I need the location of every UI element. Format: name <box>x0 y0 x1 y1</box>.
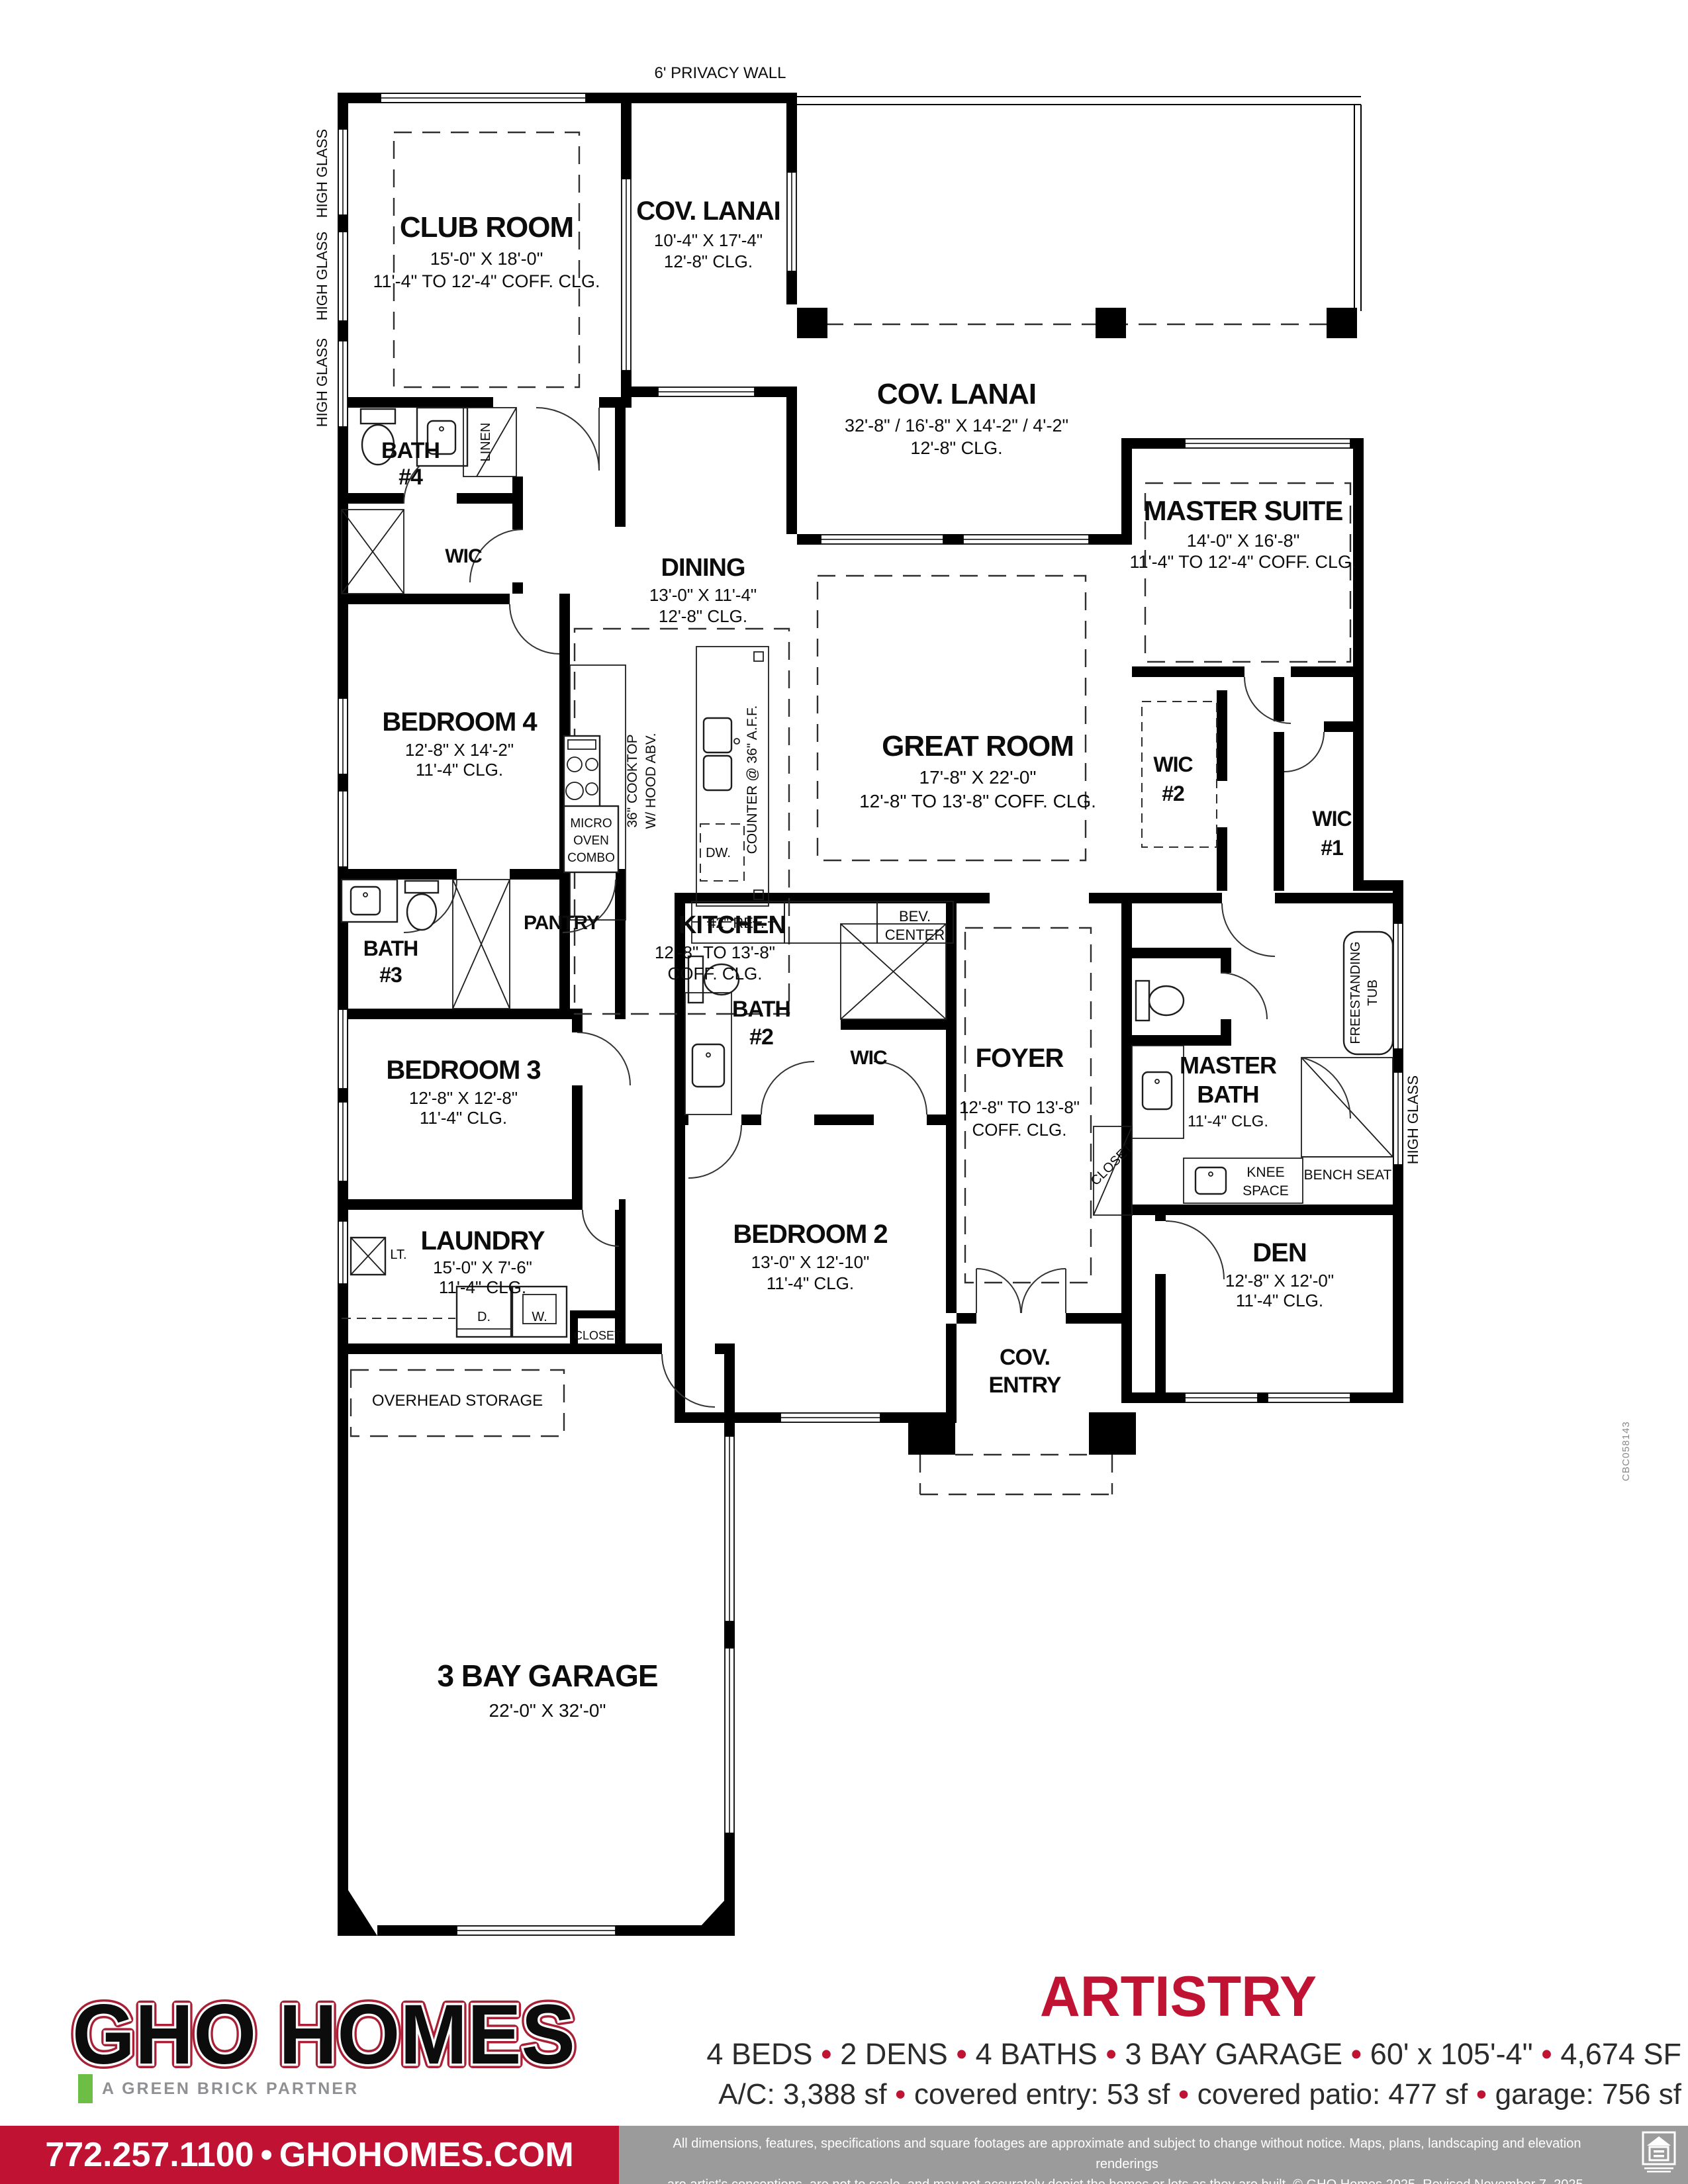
svg-text:12'-8" X 12'-8": 12'-8" X 12'-8" <box>409 1088 518 1108</box>
disclaimer-text: All dimensions, features, specifications… <box>649 2134 1605 2184</box>
knee-space-label: KNEE <box>1246 1165 1284 1180</box>
svg-text:12'-8" X 12'-0": 12'-8" X 12'-0" <box>1225 1271 1334 1291</box>
disclaimer-bar: All dimensions, features, specifications… <box>619 2126 1688 2184</box>
room-label-wic-1: WIC <box>1312 807 1352 831</box>
room-label-foyer: FOYER <box>976 1044 1064 1073</box>
svg-text:11'-4" CLG.: 11'-4" CLG. <box>420 1108 507 1128</box>
room-label-bedroom-4: BEDROOM 4 <box>382 707 538 737</box>
svg-text:10'-4" X 17'-4": 10'-4" X 17'-4" <box>654 230 763 250</box>
plan-specs-line2: A/C: 3,388 sf•covered entry: 53 sf•cover… <box>718 2078 1681 2111</box>
svg-text:12'-8" CLG.: 12'-8" CLG. <box>664 251 753 271</box>
svg-text:COFF. CLG.: COFF. CLG. <box>972 1120 1066 1140</box>
contractor-license: CBC058143 <box>1620 1421 1632 1481</box>
bench-seat-label: BENCH SEAT <box>1304 1167 1392 1183</box>
high-glass-label: HIGH GLASS <box>1405 1075 1421 1164</box>
svg-text:13'-0" X 11'-4": 13'-0" X 11'-4" <box>649 585 757 605</box>
svg-text:OVEN: OVEN <box>573 834 609 848</box>
floor-plan-flyer: 6' PRIVACY WALL HIGH GLASS HIGH GLASS HI… <box>0 0 1688 2184</box>
plan-name: ARTISTRY <box>977 1964 1380 2030</box>
room-label-garage: 3 BAY GARAGE <box>437 1659 657 1693</box>
svg-text:CENTER: CENTER <box>885 927 945 943</box>
svg-text:COFF. CLG.: COFF. CLG. <box>667 964 762 983</box>
svg-text:14'-0" X 16'-8": 14'-0" X 16'-8" <box>1187 531 1300 551</box>
toilet-icon <box>405 881 438 930</box>
svg-text:#3: #3 <box>379 963 402 987</box>
closet-label: CLOSET <box>574 1329 622 1342</box>
bev-center-label: BEV. <box>899 908 931 925</box>
room-label-wic-bath4: WIC <box>445 545 482 567</box>
dryer-label: D. <box>477 1310 491 1324</box>
svg-text:W/ HOOD ABV.: W/ HOOD ABV. <box>643 733 659 829</box>
svg-text:32'-8" / 16'-8" X 14'-2" / 4'-: 32'-8" / 16'-8" X 14'-2" / 4'-2" <box>845 416 1068 435</box>
cooktop-label: 36" COOKTOP <box>625 734 640 827</box>
freestanding-tub-label: FREESTANDING <box>1348 941 1363 1044</box>
room-label-bath-3: BATH <box>363 936 418 960</box>
room-label-den: DEN <box>1252 1238 1306 1267</box>
contact-bar: 772.257.1100•GHOHOMES.COM <box>0 2126 619 2184</box>
high-glass-label: HIGH GLASS <box>314 232 330 320</box>
room-label-club-room: CLUB ROOM <box>400 211 573 244</box>
washer-label: W. <box>532 1310 547 1324</box>
privacy-wall-label: 6' PRIVACY WALL <box>655 64 786 82</box>
svg-text:22'-0" X 32'-0": 22'-0" X 32'-0" <box>489 1700 606 1721</box>
room-label-laundry: LAUNDRY <box>420 1226 545 1255</box>
svg-text:12'-8" CLG.: 12'-8" CLG. <box>659 606 747 626</box>
equal-housing-opportunity-logo <box>1642 2131 1676 2175</box>
room-label-bedroom-2: BEDROOM 2 <box>733 1220 887 1249</box>
room-label-bath-2: BATH <box>732 997 790 1022</box>
svg-text:11'-4" CLG.: 11'-4" CLG. <box>416 760 503 780</box>
svg-text:COMBO: COMBO <box>567 851 615 865</box>
counter-label: COUNTER @ 36" A.F.F. <box>745 705 760 854</box>
green-brick-bar <box>78 2074 93 2103</box>
room-label-master-suite: MASTER SUITE <box>1144 495 1343 526</box>
room-label-cov-lanai-top: COV. LANAI <box>636 197 780 226</box>
svg-text:11'-4" TO 12'-4" COFF. CLG.: 11'-4" TO 12'-4" COFF. CLG. <box>373 271 600 291</box>
laundry-tub-label: LT. <box>390 1248 406 1262</box>
room-label-great-room: GREAT ROOM <box>882 730 1074 762</box>
room-label-bedroom-3: BEDROOM 3 <box>386 1056 540 1085</box>
svg-text:#4: #4 <box>399 465 423 490</box>
plan-specs-line1: 4 BEDS•2 DENS•4 BATHS•3 BAY GARAGE•60' x… <box>706 2037 1681 2071</box>
toilet-icon <box>1136 981 1184 1021</box>
svg-text:#2: #2 <box>1162 782 1184 805</box>
svg-text:#1: #1 <box>1321 836 1343 860</box>
ref-label: 42" REF. <box>708 915 765 931</box>
svg-text:11'-4" CLG.: 11'-4" CLG. <box>1188 1113 1268 1130</box>
svg-text:#2: #2 <box>749 1024 773 1050</box>
room-label-master-bath: MASTER <box>1180 1052 1277 1079</box>
room-label-cov-lanai: COV. LANAI <box>877 378 1036 410</box>
green-brick-partner: A GREEN BRICK PARTNER <box>78 2073 359 2104</box>
svg-text:11'-4" CLG.: 11'-4" CLG. <box>767 1273 854 1293</box>
overhead-storage-label: OVERHEAD STORAGE <box>372 1392 543 1410</box>
room-label-wic-bath2: WIC <box>850 1047 887 1069</box>
svg-text:13'-0" X 12'-10": 13'-0" X 12'-10" <box>751 1252 870 1272</box>
room-label-cov-entry: COV. <box>1000 1345 1050 1370</box>
room-label-wic-2: WIC <box>1153 752 1193 776</box>
privacy-wall <box>797 97 1361 338</box>
svg-text:11'-4" CLG.: 11'-4" CLG. <box>1236 1291 1323 1310</box>
high-glass-label: HIGH GLASS <box>314 129 330 218</box>
svg-text:12'-8" TO 13'-8" COFF. CLG.: 12'-8" TO 13'-8" COFF. CLG. <box>859 791 1096 811</box>
svg-text:12'-8" X 14'-2": 12'-8" X 14'-2" <box>405 740 514 760</box>
svg-text:SPACE: SPACE <box>1243 1183 1289 1199</box>
svg-text:GHO HOMES: GHO HOMES <box>72 1987 575 2082</box>
svg-text:15'-0" X 7'-6": 15'-0" X 7'-6" <box>433 1257 532 1277</box>
partner-label: A GREEN BRICK PARTNER <box>102 2079 359 2099</box>
svg-text:12'-8" TO 13'-8": 12'-8" TO 13'-8" <box>959 1097 1080 1117</box>
dishwasher-label: DW. <box>706 846 731 860</box>
svg-text:12'-8" CLG.: 12'-8" CLG. <box>910 438 1002 458</box>
svg-text:15'-0" X 18'-0": 15'-0" X 18'-0" <box>430 249 543 269</box>
svg-text:17'-8" X 22'-0": 17'-8" X 22'-0" <box>919 767 1037 788</box>
linen-label: LINEN <box>479 423 493 462</box>
svg-text:BATH: BATH <box>1197 1081 1258 1108</box>
svg-text:11'-4" TO 12'-4" COFF. CLG.: 11'-4" TO 12'-4" COFF. CLG. <box>1129 552 1356 572</box>
master-shower <box>1301 1058 1393 1157</box>
gho-homes-logo: GHO HOMES GHO HOMES GHO HOMES <box>70 1985 599 2085</box>
room-labels: 6' PRIVACY WALL HIGH GLASS HIGH GLASS HI… <box>314 64 1421 1721</box>
svg-text:TUB: TUB <box>1366 979 1380 1006</box>
contact-text: 772.257.1100•GHOHOMES.COM <box>45 2135 573 2175</box>
room-label-dining: DINING <box>661 554 745 582</box>
svg-text:12'-8" TO 13'-8": 12'-8" TO 13'-8" <box>655 942 775 962</box>
svg-text:ENTRY: ENTRY <box>989 1373 1062 1398</box>
floor-plan: 6' PRIVACY WALL HIGH GLASS HIGH GLASS HI… <box>0 0 1688 1959</box>
room-label-bath-4: BATH <box>381 438 440 463</box>
svg-text:11'-4" CLG.: 11'-4" CLG. <box>439 1277 526 1297</box>
room-label-pantry: PANTRY <box>524 912 600 934</box>
micro-oven-label: MICRO <box>570 817 612 831</box>
high-glass-label: HIGH GLASS <box>314 338 330 427</box>
